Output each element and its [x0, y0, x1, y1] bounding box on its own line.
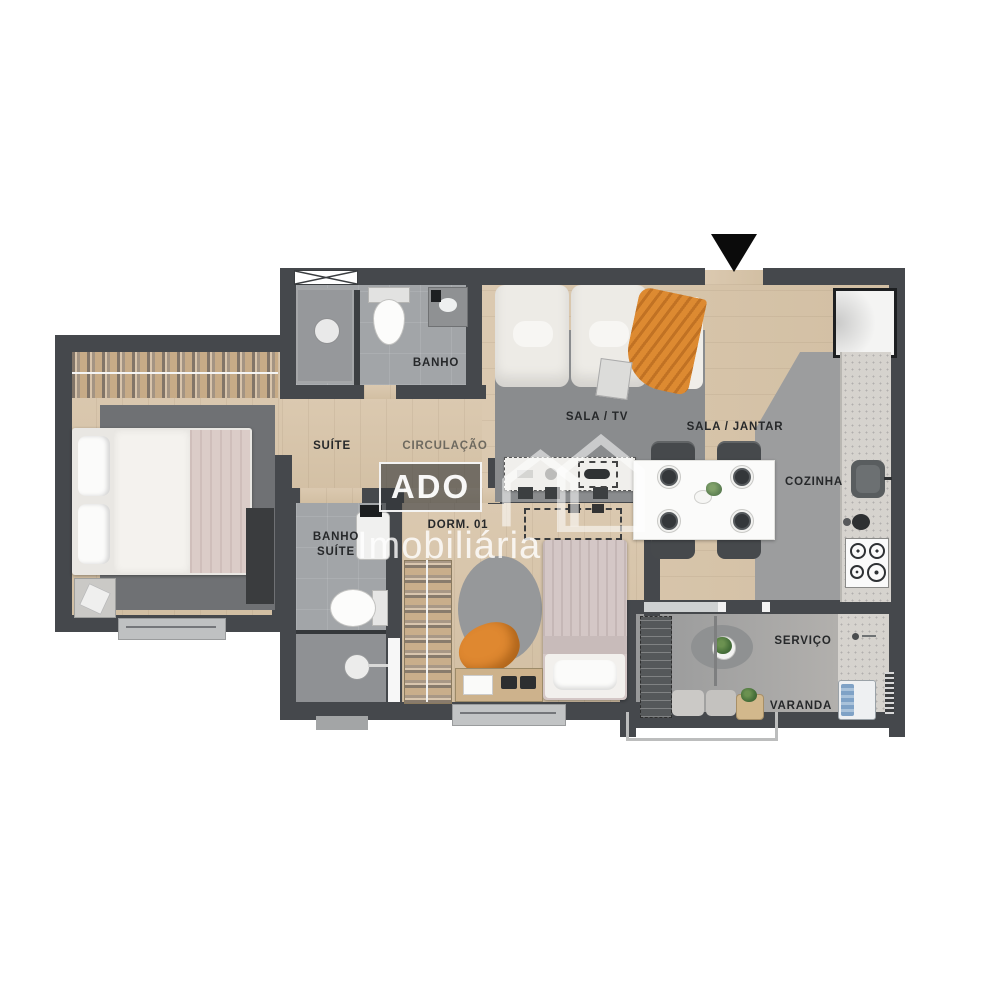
room-label-dorm01: DORM. 01	[428, 519, 489, 531]
ensuite-window	[388, 638, 400, 702]
console-stool	[545, 487, 560, 499]
wall-suite-left	[55, 335, 72, 632]
wall-bath-divider	[354, 290, 360, 385]
fridge	[833, 288, 897, 358]
table-flowers	[706, 482, 722, 496]
desk-speaker	[520, 676, 536, 689]
ensuite-door-gap	[300, 488, 362, 503]
washer-door	[841, 684, 854, 716]
bath-sink-basin	[439, 298, 457, 312]
laundry-rack	[885, 672, 894, 714]
tv-outline	[578, 461, 618, 488]
wardrobe-rail	[72, 372, 278, 374]
wall-bath-right	[466, 268, 482, 398]
room-label-varanda: VARANDA	[770, 700, 832, 712]
room-label-cozinha: COZINHA	[785, 476, 843, 488]
outline-handle	[568, 504, 580, 513]
dorm-wardrobe-rail	[426, 560, 428, 702]
ensuite-shower-floor	[296, 634, 386, 702]
side-table-plant	[741, 688, 757, 702]
dorm-door-gap	[404, 488, 500, 503]
bench-cushion	[672, 690, 704, 716]
kitchen-kettle	[852, 514, 870, 530]
bench-cushion	[706, 690, 736, 716]
bed-pillow	[78, 504, 110, 564]
ensuite-shower-arm	[368, 664, 388, 667]
wall-bath-bottom-b	[396, 385, 486, 399]
sofa-tray	[596, 358, 633, 400]
dorm-window-line	[460, 712, 556, 714]
kitchen-item	[843, 518, 851, 526]
bath-sink-counter	[428, 287, 468, 327]
wall-row2-a	[282, 488, 300, 503]
wall-suite-top	[55, 335, 295, 352]
shower-head	[314, 318, 340, 344]
room-label-banho-suite: BANHO SUÍTE	[313, 530, 359, 560]
dorm-duvet	[543, 540, 627, 636]
banho-suite-line1: BANHO	[313, 531, 359, 543]
ensuite-sink	[356, 512, 390, 560]
ensuite-shower-divider	[296, 630, 386, 634]
desk-speaker	[501, 676, 517, 689]
entry-door-floor	[705, 270, 763, 285]
laundry-tap	[852, 633, 859, 640]
room-label-circulacao: CIRCULAÇÃO	[402, 440, 487, 452]
suite-window-sill	[118, 618, 226, 640]
console-decor	[517, 470, 533, 478]
bed-pillow	[78, 436, 110, 496]
dorm-duvet-band	[543, 636, 627, 654]
console-decor	[545, 468, 557, 480]
dorm-desk	[455, 668, 543, 702]
kitchen-sink	[851, 460, 885, 498]
desk-paper	[463, 675, 493, 695]
outline-handle	[592, 504, 604, 513]
wall-ensuite-left	[280, 503, 296, 720]
bed-throw	[190, 430, 250, 573]
sofa-seat-left	[495, 285, 569, 387]
dorm-window-sill	[452, 704, 566, 726]
bath-window	[294, 270, 358, 285]
kitchen-faucet	[884, 477, 892, 480]
washing-machine	[838, 680, 876, 720]
bath-sink-item	[431, 290, 441, 302]
room-label-servico: SERVIÇO	[774, 635, 831, 647]
nightstand-decor	[79, 583, 111, 615]
dorm-wardrobe	[404, 560, 452, 704]
entrance-arrow-icon	[711, 234, 757, 272]
wall-top-right	[763, 268, 905, 285]
ensuite-sink-item	[360, 505, 382, 517]
banho-suite-line2: SUÍTE	[317, 546, 355, 558]
dorm-pillow	[553, 660, 617, 690]
dining-plate	[730, 509, 754, 533]
room-label-suite: SUÍTE	[313, 440, 351, 452]
suite-bed	[72, 428, 252, 575]
sink-basin	[856, 465, 880, 493]
laundry-tap-line	[862, 635, 876, 637]
wall-bath-bottom-a	[280, 385, 364, 399]
balcony-sliding-door	[644, 602, 724, 612]
ensuite-step	[316, 716, 368, 730]
cooktop	[845, 538, 889, 588]
suite-wardrobe	[72, 352, 278, 398]
ensuite-toilet-bowl	[330, 589, 376, 627]
sofa-cushion	[589, 321, 629, 347]
room-label-sala-tv: SALA / TV	[566, 411, 628, 423]
sofa-cushion	[513, 321, 553, 347]
balcony-glass-track	[714, 616, 717, 686]
suite-dresser-outline	[246, 508, 274, 604]
block-vent-1	[718, 602, 726, 612]
wall-row2-b	[362, 488, 404, 503]
ensuite-shower-head	[344, 654, 370, 680]
balcony-bench	[640, 616, 672, 718]
dorm-bed	[543, 540, 627, 700]
console-stool	[518, 487, 533, 499]
floor-plan: SUÍTE BANHO CIRCULAÇÃO SALA / TV SALA / …	[0, 0, 1000, 1000]
console-stool	[593, 487, 608, 499]
room-label-banho: BANHO	[413, 357, 459, 369]
dining-plate	[730, 465, 754, 489]
suite-nightstand	[74, 578, 116, 618]
suite-window-line	[126, 626, 216, 628]
bath-door-gap	[364, 385, 396, 399]
wall-bath-left	[280, 268, 296, 398]
room-label-sala-jantar: SALA / JANTAR	[687, 421, 784, 433]
tv-soundbar	[584, 469, 610, 479]
dining-plate	[657, 465, 681, 489]
bed-duvet	[114, 430, 190, 573]
block-vent-2	[762, 602, 770, 612]
dining-plate	[657, 509, 681, 533]
